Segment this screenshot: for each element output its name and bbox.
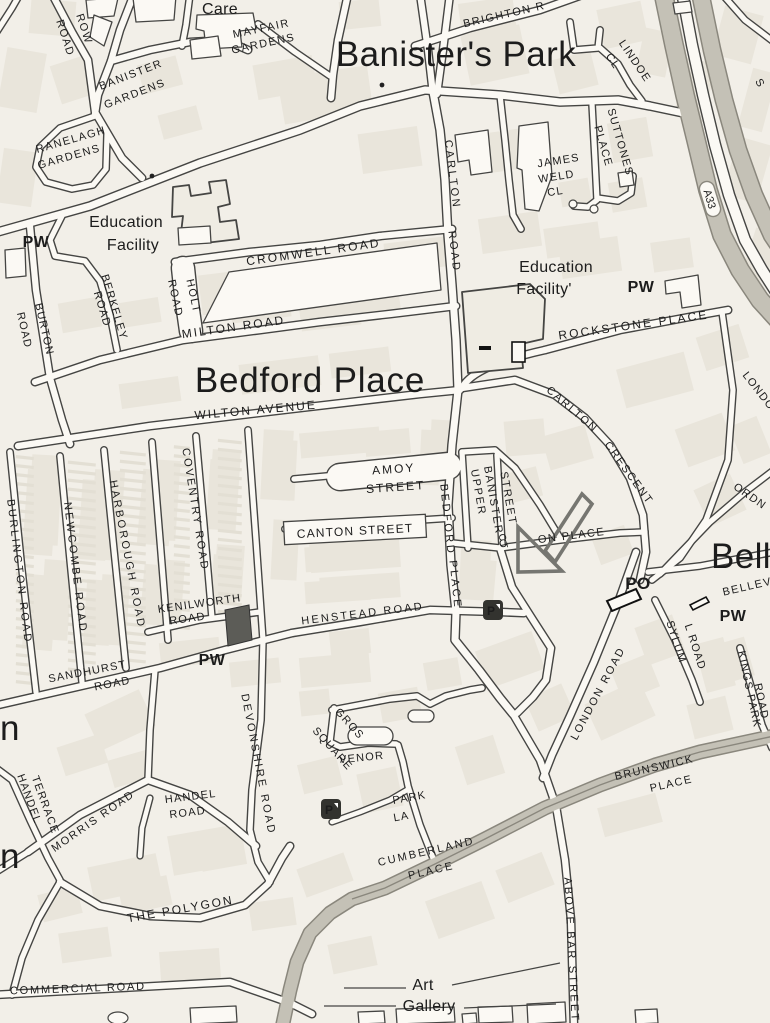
svg-text:PW: PW [23,234,50,251]
svg-text:Gallery: Gallery [403,998,456,1015]
svg-text:Facility: Facility [107,237,159,254]
svg-text:n: n [0,709,20,748]
svg-text:Bedford Place: Bedford Place [195,361,425,400]
svg-text:CL: CL [546,185,564,199]
svg-text:Care: Care [202,1,238,18]
svg-text:Education: Education [519,259,593,276]
svg-text:PW: PW [720,608,747,625]
svg-text:PW: PW [199,652,226,669]
svg-text:PW: PW [628,279,655,296]
svg-text:Facility': Facility' [516,281,572,298]
svg-text:PO: PO [625,574,651,593]
svg-text:n: n [0,837,20,876]
svg-text:C: C [498,538,509,551]
svg-text:Bellevue: Bellevue [711,537,770,576]
svg-text:Banister's Park: Banister's Park [336,35,576,74]
svg-text:Education: Education [89,214,163,231]
svg-text:P: P [325,803,333,817]
svg-text:Art: Art [412,977,434,994]
svg-text:P: P [487,604,495,618]
